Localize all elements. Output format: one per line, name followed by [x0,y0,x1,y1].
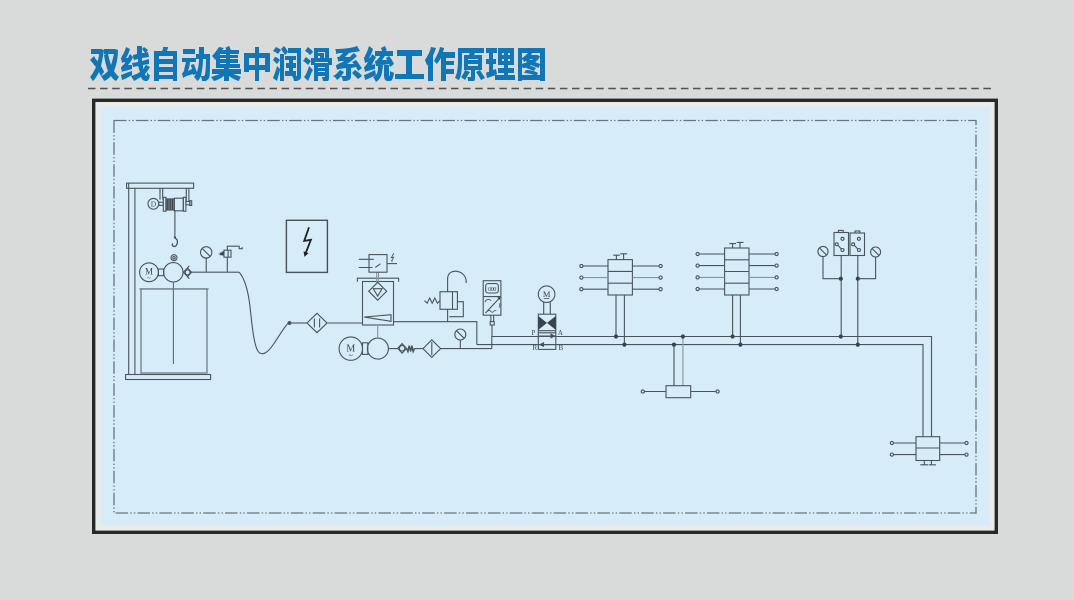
svg-text:~: ~ [147,274,151,282]
svg-text:R: R [532,344,537,352]
svg-text:A: A [558,329,563,337]
svg-text:P: P [498,303,502,310]
svg-text:P: P [532,329,536,337]
svg-text:000: 000 [488,287,496,293]
svg-text:M: M [543,289,551,299]
svg-text:D: D [151,200,157,209]
svg-text:B: B [558,344,563,352]
svg-text:~: ~ [349,351,354,360]
